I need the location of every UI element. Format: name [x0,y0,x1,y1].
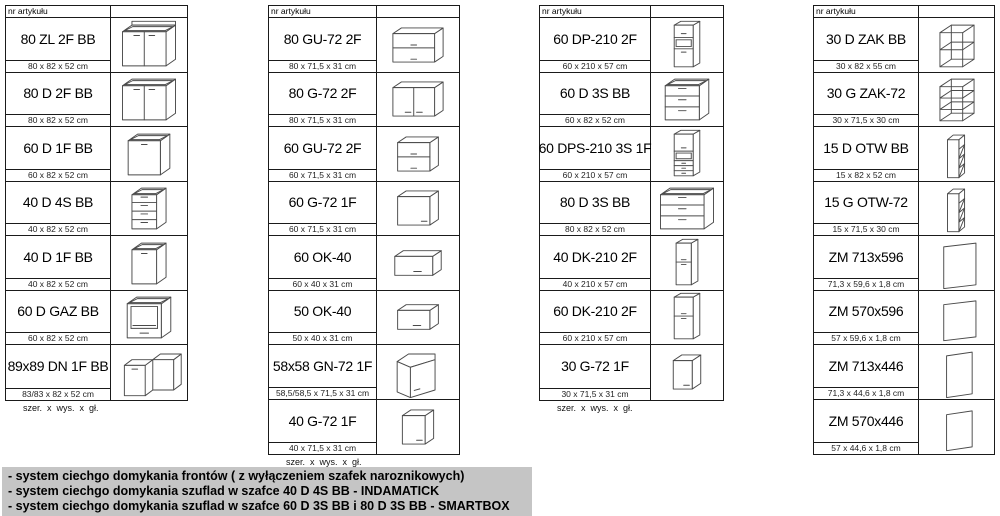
product-drawing-cell [111,127,187,181]
product-row: 15 G OTW-7215 x 71,5 x 30 cm [814,182,994,237]
product-drawing-cell [111,182,187,236]
product-drawing-cell [919,73,994,127]
product-row: 80 G-72 2F80 x 71,5 x 31 cm [269,73,459,128]
catalog-page: { "header_label": "nr artykułu", "size_l… [0,0,1000,516]
open-narrow-wall-icon [921,182,993,234]
size-legend: szer. x wys. x gł. [23,403,99,413]
product-info-cell: 30 G-72 1F30 x 71,5 x 31 cm [540,345,651,400]
product-code: 60 D 1F BB [6,127,110,169]
product-dimensions: 80 x 82 x 52 cm [6,114,110,126]
product-code: 80 G-72 2F [269,73,376,115]
product-drawing-cell [919,236,994,290]
product-dimensions: 71,3 x 44,6 x 1,8 cm [814,387,918,399]
product-drawing-cell [651,345,723,400]
product-code: 89x89 DN 1F BB [6,345,110,388]
product-dimensions: 60 x 71,5 x 31 cm [269,169,376,181]
sink-base-2-door-icon [113,19,185,71]
header-spacer [651,6,723,17]
product-drawing-cell [651,291,723,345]
product-info-cell: 60 D GAZ BB60 x 82 x 52 cm [6,291,111,345]
product-dimensions: 40 x 82 x 52 cm [6,223,110,235]
article-number-header: nr artykułu [540,6,651,17]
product-info-cell: 60 D 1F BB60 x 82 x 52 cm [6,127,111,181]
product-code: ZM 713x596 [814,236,918,278]
product-drawing-cell [919,291,994,345]
product-row: 60 D 1F BB60 x 82 x 52 cm [6,127,187,182]
tall-oven-niche-icon [651,19,723,71]
product-row: 60 DPS-210 3S 1F60 x 210 x 57 cm [540,127,723,182]
product-row: 80 ZL 2F BB80 x 82 x 52 cm [6,18,187,73]
open-end-shelf-base-icon [921,19,993,71]
product-row: ZM 570x44657 x 44,6 x 1,8 cm [814,400,994,455]
product-dimensions: 15 x 71,5 x 30 cm [814,223,918,235]
panel-medium-icon [921,291,993,343]
product-dimensions: 30 x 71,5 x 30 cm [814,114,918,126]
product-code: 80 D 2F BB [6,73,110,115]
product-row: 80 D 2F BB80 x 82 x 52 cm [6,73,187,128]
product-dimensions: 57 x 59,6 x 1,8 cm [814,332,918,344]
product-info-cell: 30 D ZAK BB30 x 82 x 55 cm [814,18,919,72]
open-end-shelf-wall-icon [921,73,993,125]
product-info-cell: 30 G ZAK-7230 x 71,5 x 30 cm [814,73,919,127]
product-info-cell: 80 G-72 2F80 x 71,5 x 31 cm [269,73,377,127]
product-drawing-cell [377,345,459,399]
product-drawing-cell [377,236,459,290]
product-code: 80 GU-72 2F [269,18,376,60]
product-dimensions: 30 x 82 x 55 cm [814,60,918,72]
product-dimensions: 60 x 40 x 31 cm [269,278,376,290]
size-legend: szer. x wys. x gł. [557,403,633,413]
note-line: - system ciechgo domykania frontów ( z w… [8,469,526,484]
product-info-cell: 15 D OTW BB15 x 82 x 52 cm [814,127,919,181]
product-drawing-cell [377,18,459,72]
product-info-cell: ZM 570x59657 x 59,6 x 1,8 cm [814,291,919,345]
product-info-cell: 40 G-72 1F40 x 71,5 x 31 cm [269,400,377,455]
tall-niche-drawers-icon [651,128,723,180]
product-code: 30 D ZAK BB [814,18,918,60]
table-header-row: nr artykułu [540,6,723,18]
product-code: 60 G-72 1F [269,182,376,224]
product-row: 60 GU-72 2F60 x 71,5 x 31 cm [269,127,459,182]
product-dimensions: 60 x 210 x 57 cm [540,169,650,181]
product-drawing-cell [651,127,723,181]
wall-2-doors-icon [382,73,454,125]
product-code: 40 D 4S BB [6,182,110,224]
product-row: 40 D 4S BB40 x 82 x 52 cm [6,182,187,237]
product-info-cell: 80 ZL 2F BB80 x 82 x 52 cm [6,18,111,72]
product-drawing-cell [377,127,459,181]
product-drawing-cell [111,236,187,290]
wall-1-door-small-icon [651,346,723,398]
product-row: 60 D 3S BB60 x 82 x 52 cm [540,73,723,128]
product-row: 80 D 3S BB80 x 82 x 52 cm [540,182,723,237]
product-row: 40 G-72 1F40 x 71,5 x 31 cm [269,400,459,455]
article-number-header: nr artykułu [814,6,919,17]
product-drawing-cell [651,73,723,127]
product-dimensions: 58,5/58,5 x 71,5 x 31 cm [269,387,376,399]
product-code: 60 DPS-210 3S 1F [540,127,650,169]
product-info-cell: 89x89 DN 1F BB83/83 x 82 x 52 cm [6,345,111,400]
base-3-drawers-icon [651,73,723,125]
table-header-row: nr artykułu [269,6,459,18]
product-dimensions: 71,3 x 59,6 x 1,8 cm [814,278,918,290]
corner-wall-icon [382,346,454,398]
product-info-cell: 40 DK-210 2F40 x 210 x 57 cm [540,236,651,290]
panel-large-icon [921,237,993,289]
header-spacer [111,6,187,17]
product-code: 60 OK-40 [269,236,376,278]
catalog-table-wall-cabinets: nr artykułu80 GU-72 2F80 x 71,5 x 31 cm8… [268,5,460,455]
product-info-cell: 58x58 GN-72 1F58,5/58,5 x 71,5 x 31 cm [269,345,377,399]
product-drawing-cell [651,18,723,72]
closing-system-notes: - system ciechgo domykania frontów ( z w… [2,467,532,516]
product-dimensions: 15 x 82 x 52 cm [814,169,918,181]
product-code: 40 G-72 1F [269,400,376,443]
wall-2-flaps-icon [382,128,454,180]
product-dimensions: 40 x 210 x 57 cm [540,278,650,290]
product-code: 80 ZL 2F BB [6,18,110,60]
table-header-row: nr artykułu [6,6,187,18]
product-code: 15 D OTW BB [814,127,918,169]
article-number-header: nr artykułu [6,6,111,17]
product-dimensions: 40 x 71,5 x 31 cm [269,442,376,454]
product-info-cell: 15 G OTW-7215 x 71,5 x 30 cm [814,182,919,236]
product-drawing-cell [111,18,187,72]
product-row: 50 OK-4050 x 40 x 31 cm [269,291,459,346]
product-code: 40 DK-210 2F [540,236,650,278]
product-row: 58x58 GN-72 1F58,5/58,5 x 71,5 x 31 cm [269,345,459,400]
product-info-cell: 60 DPS-210 3S 1F60 x 210 x 57 cm [540,127,651,181]
product-row: 30 G-72 1F30 x 71,5 x 31 cm [540,345,723,400]
product-row: 60 G-72 1F60 x 71,5 x 31 cm [269,182,459,237]
product-code: 60 DP-210 2F [540,18,650,60]
wall-1-door-narrow-icon [382,401,454,453]
product-dimensions: 83/83 x 82 x 52 cm [6,388,110,400]
product-info-cell: 80 D 2F BB80 x 82 x 52 cm [6,73,111,127]
product-drawing-cell [919,400,994,455]
product-code: 60 DK-210 2F [540,291,650,333]
product-info-cell: 60 D 3S BB60 x 82 x 52 cm [540,73,651,127]
product-info-cell: 80 D 3S BB80 x 82 x 52 cm [540,182,651,236]
product-info-cell: ZM 713x44671,3 x 44,6 x 1,8 cm [814,345,919,399]
base-3-drawers-wide-icon [651,182,723,234]
product-dimensions: 30 x 71,5 x 31 cm [540,388,650,400]
product-drawing-cell [919,182,994,236]
product-code: 40 D 1F BB [6,236,110,278]
base-1-door-icon [113,128,185,180]
product-drawing-cell [377,291,459,345]
product-info-cell: 40 D 4S BB40 x 82 x 52 cm [6,182,111,236]
product-dimensions: 60 x 82 x 52 cm [6,169,110,181]
product-dimensions: 60 x 210 x 57 cm [540,332,650,344]
product-row: 15 D OTW BB15 x 82 x 52 cm [814,127,994,182]
product-dimensions: 60 x 82 x 52 cm [6,332,110,344]
product-row: 60 OK-4060 x 40 x 31 cm [269,236,459,291]
product-dimensions: 80 x 82 x 52 cm [6,60,110,72]
base-4-drawers-icon [113,182,185,234]
product-drawing-cell [111,345,187,400]
product-info-cell: 80 GU-72 2F80 x 71,5 x 31 cm [269,18,377,72]
tall-2-doors-narrow-icon [651,237,723,289]
article-number-header: nr artykułu [269,6,377,17]
panel-small-icon [921,346,993,398]
product-info-cell: ZM 713x59671,3 x 59,6 x 1,8 cm [814,236,919,290]
product-code: 60 GU-72 2F [269,127,376,169]
product-info-cell: 60 GU-72 2F60 x 71,5 x 31 cm [269,127,377,181]
product-info-cell: 50 OK-4050 x 40 x 31 cm [269,291,377,345]
product-row: 40 D 1F BB40 x 82 x 52 cm [6,236,187,291]
oven-housing-icon [113,291,185,343]
product-drawing-cell [651,182,723,236]
product-code: 60 D 3S BB [540,73,650,115]
product-drawing-cell [111,73,187,127]
wall-flap-icon [382,291,454,343]
product-row: 40 DK-210 2F40 x 210 x 57 cm [540,236,723,291]
product-dimensions: 80 x 71,5 x 31 cm [269,114,376,126]
product-info-cell: 40 D 1F BB40 x 82 x 52 cm [6,236,111,290]
header-spacer [377,6,459,17]
product-drawing-cell [377,73,459,127]
open-narrow-base-icon [921,128,993,180]
header-spacer [919,6,994,17]
note-line: - system ciechgo domykania szuflad w sza… [8,499,526,514]
table-header-row: nr artykułu [814,6,994,18]
product-dimensions: 80 x 71,5 x 31 cm [269,60,376,72]
product-code: ZM 570x596 [814,291,918,333]
product-code: 30 G-72 1F [540,345,650,388]
product-row: ZM 713x44671,3 x 44,6 x 1,8 cm [814,345,994,400]
product-row: 60 DP-210 2F60 x 210 x 57 cm [540,18,723,73]
product-code: 30 G ZAK-72 [814,73,918,115]
product-info-cell: ZM 570x44657 x 44,6 x 1,8 cm [814,400,919,455]
base-1-door-narrow-icon [113,237,185,289]
catalog-table-tall-and-drawer-cabinets: nr artykułu60 DP-210 2F60 x 210 x 57 cm6… [539,5,724,401]
product-info-cell: 60 G-72 1F60 x 71,5 x 31 cm [269,182,377,236]
product-dimensions: 50 x 40 x 31 cm [269,332,376,344]
corner-base-icon [113,346,185,398]
product-code: ZM 713x446 [814,345,918,387]
product-drawing-cell [919,18,994,72]
product-drawing-cell [377,400,459,455]
product-code: 60 D GAZ BB [6,291,110,333]
wall-1-door-icon [382,182,454,234]
product-row: 30 D ZAK BB30 x 82 x 55 cm [814,18,994,73]
product-code: 58x58 GN-72 1F [269,345,376,387]
catalog-table-base-cabinets: nr artykułu80 ZL 2F BB80 x 82 x 52 cm80 … [5,5,188,401]
product-dimensions: 60 x 210 x 57 cm [540,60,650,72]
product-drawing-cell [919,127,994,181]
product-dimensions: 57 x 44,6 x 1,8 cm [814,442,918,454]
wall-flap-wide-icon [382,237,454,289]
product-row: ZM 713x59671,3 x 59,6 x 1,8 cm [814,236,994,291]
panel-xsmall-icon [921,401,993,453]
product-row: ZM 570x59657 x 59,6 x 1,8 cm [814,291,994,346]
product-row: 89x89 DN 1F BB83/83 x 82 x 52 cm [6,345,187,400]
product-code: ZM 570x446 [814,400,918,443]
product-row: 60 D GAZ BB60 x 82 x 52 cm [6,291,187,346]
product-drawing-cell [651,236,723,290]
product-info-cell: 60 OK-4060 x 40 x 31 cm [269,236,377,290]
product-dimensions: 60 x 82 x 52 cm [540,114,650,126]
tall-2-doors-icon [651,291,723,343]
product-code: 80 D 3S BB [540,182,650,224]
catalog-table-open-units-and-panels: nr artykułu30 D ZAK BB30 x 82 x 55 cm30 … [813,5,995,455]
size-legend: szer. x wys. x gł. [286,457,362,467]
product-info-cell: 60 DP-210 2F60 x 210 x 57 cm [540,18,651,72]
product-code: 15 G OTW-72 [814,182,918,224]
product-drawing-cell [377,182,459,236]
note-line: - system ciechgo domykania szuflad w sza… [8,484,526,499]
wall-2-flaps-wide-icon [382,19,454,71]
product-row: 60 DK-210 2F60 x 210 x 57 cm [540,291,723,346]
base-2-door-wide-icon [113,73,185,125]
product-drawing-cell [111,291,187,345]
product-dimensions: 40 x 82 x 52 cm [6,278,110,290]
product-row: 30 G ZAK-7230 x 71,5 x 30 cm [814,73,994,128]
product-drawing-cell [919,345,994,399]
product-dimensions: 60 x 71,5 x 31 cm [269,223,376,235]
product-code: 50 OK-40 [269,291,376,333]
product-row: 80 GU-72 2F80 x 71,5 x 31 cm [269,18,459,73]
product-info-cell: 60 DK-210 2F60 x 210 x 57 cm [540,291,651,345]
product-dimensions: 80 x 82 x 52 cm [540,223,650,235]
